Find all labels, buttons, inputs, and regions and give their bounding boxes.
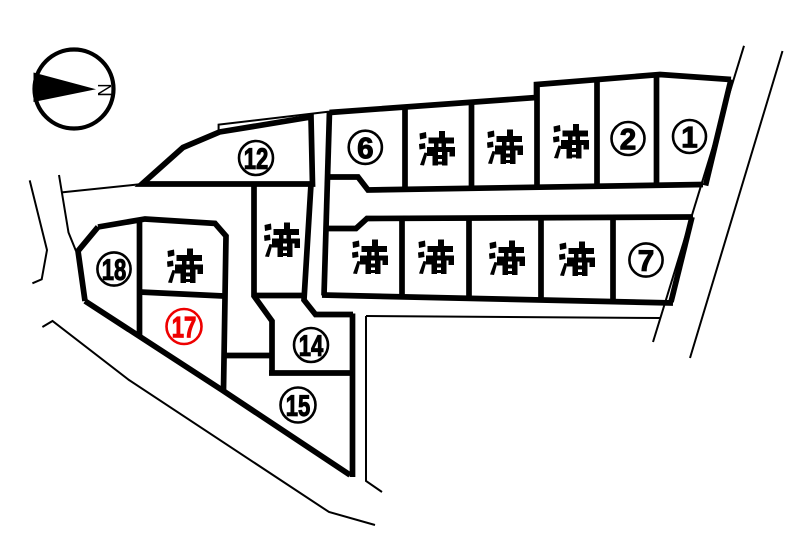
svg-text:7: 7 [638,245,655,278]
svg-text:1: 1 [681,121,698,154]
svg-text:12: 12 [244,143,269,176]
svg-text:15: 15 [286,390,311,423]
svg-text:N: N [94,83,115,96]
svg-text:18: 18 [102,254,127,287]
svg-text:2: 2 [620,123,637,156]
svg-text:14: 14 [299,330,324,363]
svg-text:17: 17 [172,311,197,344]
svg-text:6: 6 [357,132,374,165]
